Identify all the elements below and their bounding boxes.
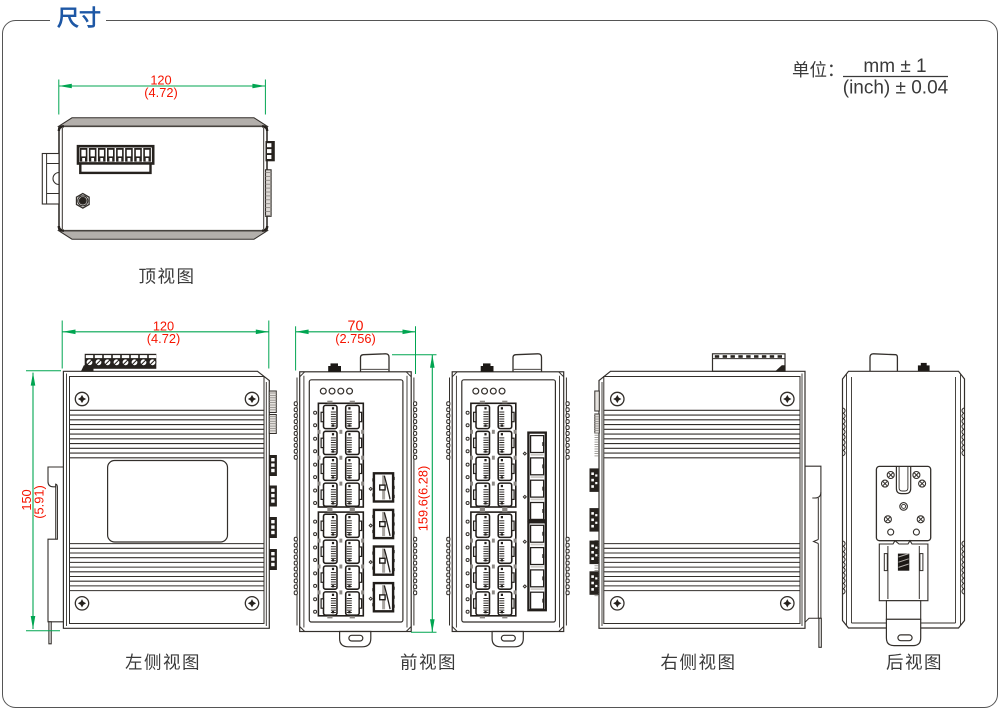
svg-text:(2.756): (2.756) <box>335 331 376 346</box>
svg-text:(4.72): (4.72) <box>147 331 180 346</box>
svg-text:单位：: 单位： <box>792 60 845 80</box>
svg-text:mm ± 1: mm ± 1 <box>863 56 926 77</box>
svg-text:右侧视图: 右侧视图 <box>661 653 737 673</box>
svg-text:159.6(6.28): 159.6(6.28) <box>416 466 431 531</box>
svg-text:左侧视图: 左侧视图 <box>125 653 201 673</box>
svg-text:(4.72): (4.72) <box>144 85 177 100</box>
svg-text:顶视图: 顶视图 <box>139 267 196 287</box>
svg-text:尺寸: 尺寸 <box>57 5 101 30</box>
svg-text:前视图: 前视图 <box>400 653 457 673</box>
svg-text:(inch) ± 0.04: (inch) ± 0.04 <box>843 78 949 99</box>
svg-text:(5.91): (5.91) <box>32 485 47 518</box>
svg-text:后视图: 后视图 <box>886 653 943 673</box>
